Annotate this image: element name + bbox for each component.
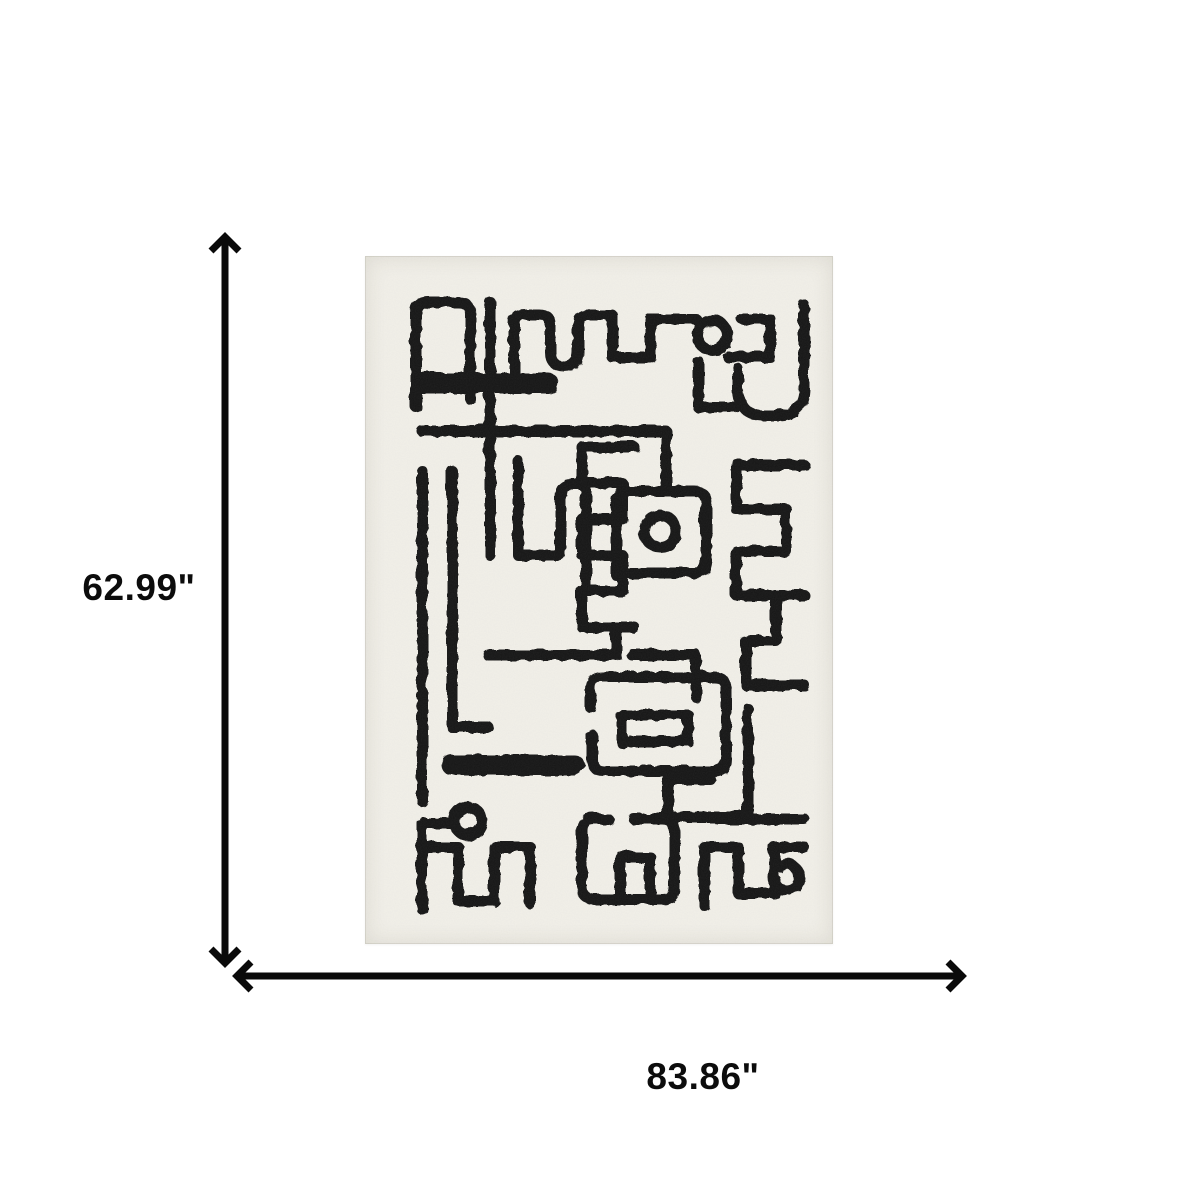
vertical-dimension-arrow	[211, 237, 239, 963]
rug-pattern-art	[365, 256, 833, 944]
rug-fabric-texture	[365, 256, 833, 944]
dimension-diagram: 62.99" 83.86"	[0, 0, 1200, 1200]
arrow-right-icon	[948, 962, 962, 990]
arrow-down-icon	[211, 949, 239, 963]
vertical-dimension-label: 62.99"	[82, 567, 195, 609]
arrow-up-icon	[211, 237, 239, 251]
horizontal-dimension-label: 83.86"	[646, 1056, 759, 1098]
arrow-left-icon	[237, 962, 251, 990]
rug-product-image	[365, 256, 833, 944]
horizontal-dimension-arrow	[237, 962, 962, 990]
